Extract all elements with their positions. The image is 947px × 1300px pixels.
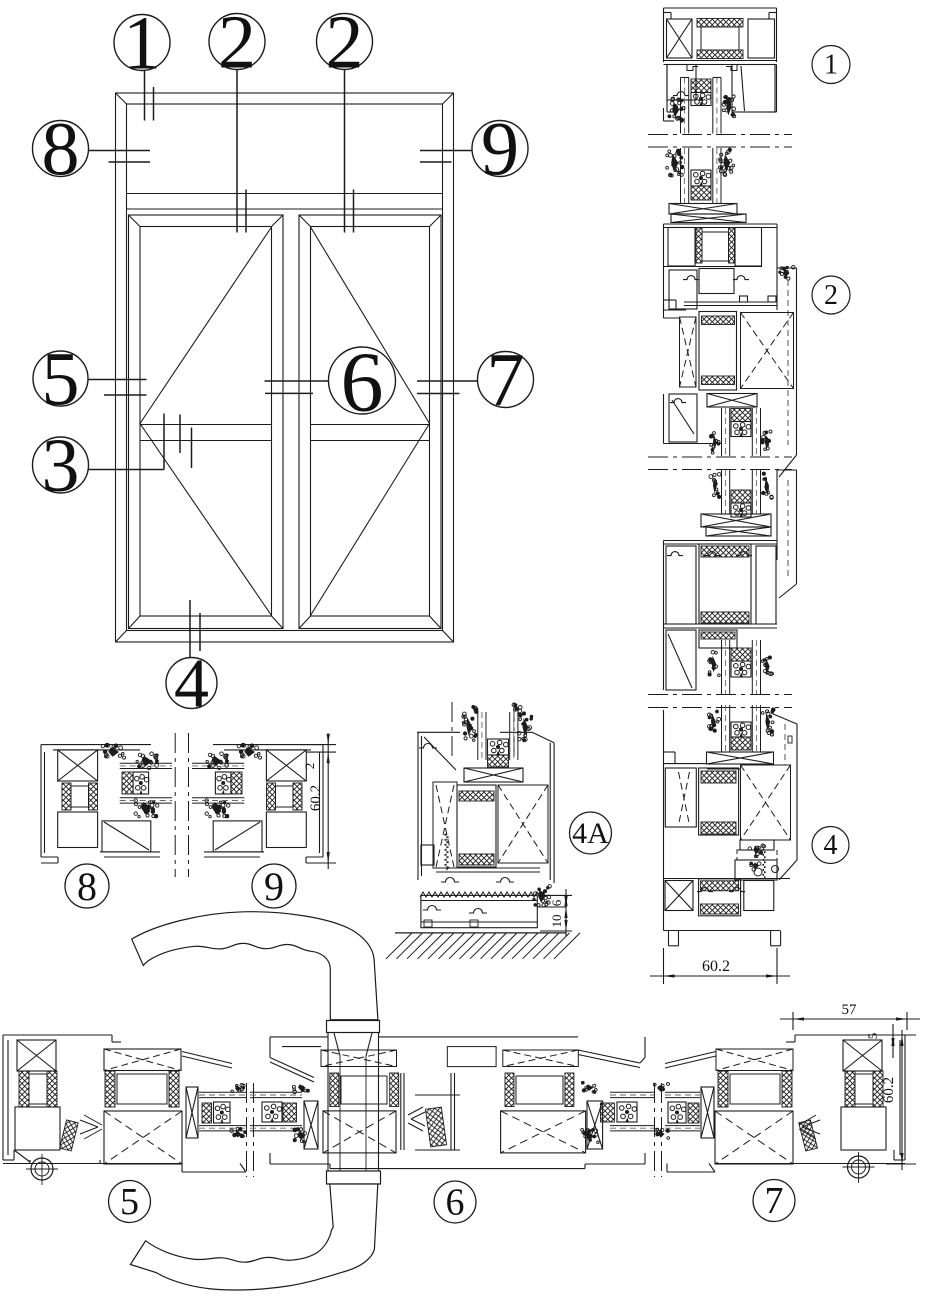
svg-text:7: 7 xyxy=(487,338,525,422)
svg-text:4: 4 xyxy=(824,830,838,861)
svg-text:10: 10 xyxy=(549,915,564,928)
svg-text:5: 5 xyxy=(120,1181,139,1223)
svg-text:8: 8 xyxy=(77,864,97,909)
svg-text:2: 2 xyxy=(326,0,364,84)
svg-text:2: 2 xyxy=(302,763,317,770)
svg-text:5: 5 xyxy=(865,1033,880,1040)
svg-text:57: 57 xyxy=(842,1002,858,1018)
svg-text:9: 9 xyxy=(264,864,284,909)
svg-text:6: 6 xyxy=(446,1182,465,1224)
svg-text:60.2: 60.2 xyxy=(308,785,324,811)
svg-text:1: 1 xyxy=(123,1,161,85)
svg-text:6: 6 xyxy=(341,334,384,430)
svg-text:2: 2 xyxy=(218,0,256,84)
svg-text:6: 6 xyxy=(549,899,564,906)
svg-text:60.2: 60.2 xyxy=(702,958,730,975)
svg-text:7: 7 xyxy=(765,1180,784,1222)
svg-text:8: 8 xyxy=(42,107,80,191)
svg-text:5: 5 xyxy=(42,337,80,421)
svg-text:1: 1 xyxy=(824,49,838,80)
svg-text:2: 2 xyxy=(824,280,838,311)
svg-text:3: 3 xyxy=(42,424,80,508)
svg-text:4: 4 xyxy=(174,645,209,722)
svg-text:4A: 4A xyxy=(572,817,609,850)
svg-text:60.2: 60.2 xyxy=(881,1077,897,1103)
svg-text:9: 9 xyxy=(481,107,519,191)
